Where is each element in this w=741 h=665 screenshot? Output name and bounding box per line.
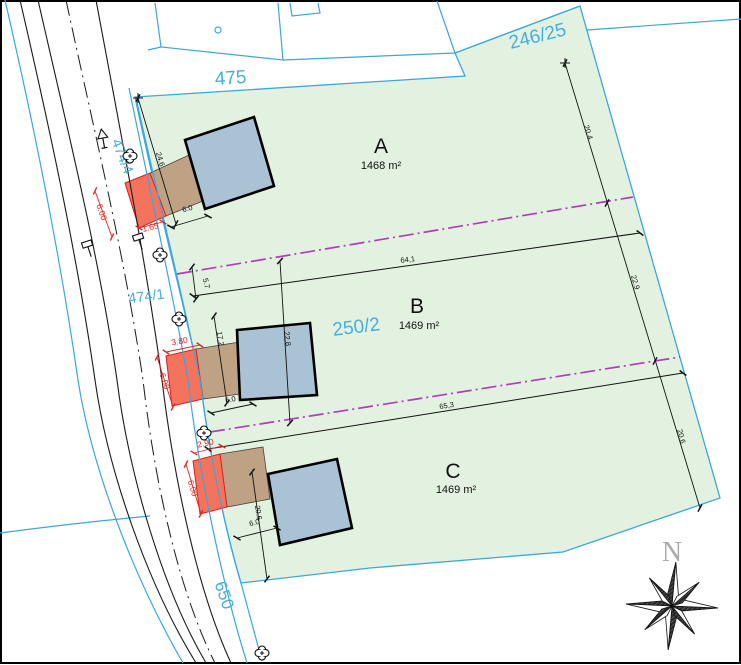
building-c (268, 459, 352, 545)
driveway-c-tan (220, 447, 270, 507)
dim-22-8: 22.8 (282, 331, 292, 346)
north-label: N (662, 537, 682, 568)
label-475: 475 (214, 67, 247, 90)
plot-c-letter: C (445, 460, 460, 483)
building-b (237, 323, 317, 400)
plot-b-area: 1469 m² (399, 320, 440, 332)
site-plan-drawing: 24.6 6.0 5.7 64,1 17.2 22.8 6.0 65,3 20.… (0, 0, 741, 665)
plot-a-area: 1468 m² (361, 160, 402, 172)
site-plan-canvas: 24.6 6.0 5.7 64,1 17.2 22.8 6.0 65,3 20.… (0, 0, 741, 665)
plot-c-area: 1469 m² (436, 484, 477, 496)
dim-64-1: 64,1 (400, 254, 416, 265)
plot-b-letter: B (410, 295, 424, 318)
plot-a-letter: A (374, 135, 388, 158)
